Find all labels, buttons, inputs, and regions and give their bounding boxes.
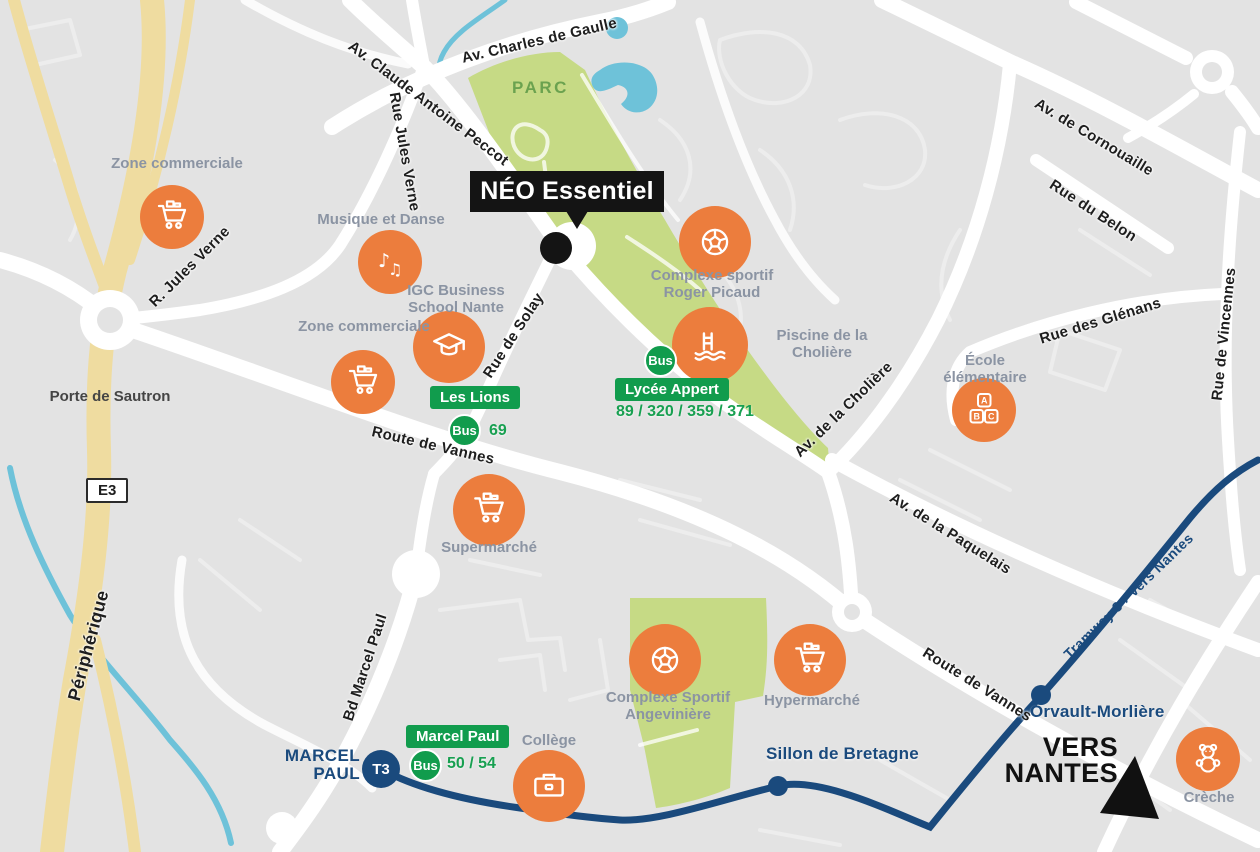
swimming-pool-icon: [672, 307, 748, 383]
soccer-ball-icon: [629, 624, 701, 696]
shopping-cart-icon: [331, 350, 395, 414]
poi-label-musique-et-danse: Musique et Danse: [301, 212, 461, 229]
project-marker: NÉO Essentiel: [470, 171, 664, 212]
poi-label-creche: Crèche: [1149, 790, 1260, 807]
abc-letter-a: A: [981, 396, 988, 406]
vers-nantes-line2: NANTES: [1005, 758, 1118, 788]
poi-label-complexe-roger-picaud: Complexe sportif Roger Picaud: [632, 268, 792, 302]
bus-stop-badge-marcel-paul: Marcel Paul: [406, 725, 509, 748]
teddy-bear-icon: [1176, 727, 1240, 791]
abc-letter-c: C: [988, 412, 995, 422]
music-note-2: ♫: [388, 260, 402, 279]
interchange-label-porte-de-sautron: Porte de Sautron: [40, 388, 180, 405]
bus-stop-badge-les-lions: Les Lions: [430, 386, 520, 409]
poi-label-ecole-elementaire: École élémentaire: [925, 353, 1045, 387]
bus-lines-les-lions: 69: [489, 422, 507, 440]
poi-label-zone-commerciale-ouest: Zone commerciale: [294, 319, 434, 336]
bus-icon: Bus: [448, 414, 481, 447]
shopping-cart-icon: [453, 474, 525, 546]
abc-letter-b: B: [973, 412, 980, 422]
poi-label-igc-business: IGC Business School Nante: [386, 283, 526, 317]
bus-stop-badge-lycee-appert: Lycée Appert: [615, 378, 729, 401]
bus-lines-marcel-paul: 50 / 54: [447, 755, 496, 773]
bus-icon: Bus: [644, 344, 677, 377]
poi-label-zone-commerciale-nord: Zone commerciale: [107, 156, 247, 173]
poi-label-supermarche: Supermarché: [409, 540, 569, 557]
tram-station-label-orvault: Orvault-Morlière: [1030, 702, 1165, 722]
poi-label-complexe-angeviniere: Complexe Sportif Angevinière: [588, 690, 748, 724]
shopping-cart-icon: [774, 624, 846, 696]
park-label: PARC: [512, 78, 569, 98]
tram-line-badge-t3: T3: [362, 750, 400, 788]
highway-shield-e3: E3: [86, 478, 128, 503]
tram-terminus-line1: MARCEL: [285, 746, 360, 765]
bus-lines-lycee-appert: 89 / 320 / 359 / 371: [616, 403, 754, 421]
poi-label-hypermarche: Hypermarché: [732, 693, 892, 710]
map-canvas: Av. Charles de Gaulle Av. Claude Antoine…: [0, 0, 1260, 852]
abc-blocks-icon: A B C: [952, 378, 1016, 442]
project-marker-label: NÉO Essentiel: [480, 177, 654, 206]
project-location-dot: [540, 232, 572, 264]
vers-nantes-label: VERS NANTES: [968, 734, 1118, 787]
tram-terminus-label: MARCEL PAUL: [260, 747, 360, 783]
tram-terminus-line2: PAUL: [313, 764, 360, 783]
sillon-station-dot: [768, 776, 788, 796]
shopping-cart-icon: [140, 185, 204, 249]
tram-station-label-sillon: Sillon de Bretagne: [766, 744, 919, 764]
poi-label-piscine-choliere: Piscine de la Cholière: [762, 328, 882, 362]
bus-icon: Bus: [409, 749, 442, 782]
briefcase-icon: [513, 750, 585, 822]
